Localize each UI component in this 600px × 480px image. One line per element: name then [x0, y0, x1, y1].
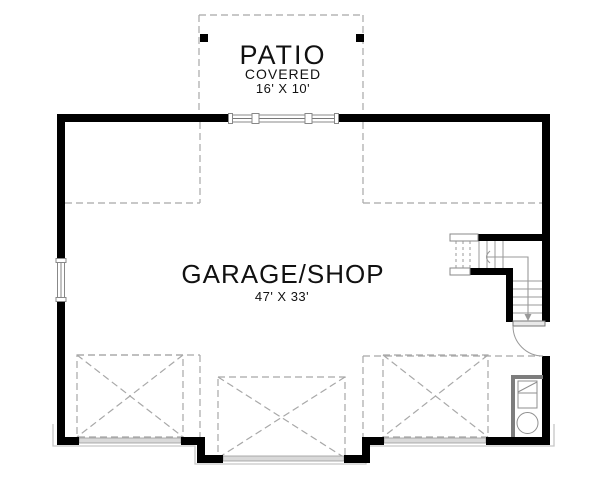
- patio-dimensions: 16' X 10': [256, 81, 310, 96]
- ceiling-line-left: [65, 122, 200, 203]
- door-swing-arc: [513, 326, 543, 356]
- stairs: [450, 234, 542, 322]
- garage-dimensions: 47' X 33': [255, 289, 309, 304]
- left-window: [56, 259, 66, 302]
- water-heater: [517, 413, 538, 434]
- floor-plan-drawing: PATIO COVERED 16' X 10' GARAGE/SHOP 47' …: [0, 0, 600, 480]
- entry-door: [513, 321, 545, 356]
- patio-label: PATIO COVERED 16' X 10': [239, 40, 326, 96]
- patio-post-right: [356, 34, 364, 42]
- top-window: [229, 114, 339, 124]
- garage-door-threshold-right: [384, 438, 486, 443]
- stair-treads-upper: [479, 241, 503, 268]
- garage-bay-middle: [218, 377, 345, 458]
- garage-title: GARAGE/SHOP: [181, 259, 384, 289]
- stair-stringer-top: [450, 234, 478, 241]
- stair-stringer-bottom: [450, 268, 470, 275]
- window-mullion: [252, 114, 259, 124]
- garage-label: GARAGE/SHOP 47' X 33': [181, 259, 384, 304]
- utility-closet: [511, 375, 543, 437]
- patio-post-left: [200, 34, 208, 42]
- patio-subtitle: COVERED: [245, 66, 321, 82]
- door-leaf: [513, 321, 545, 326]
- ceiling-line-right: [363, 122, 542, 203]
- floor-plan: PATIO COVERED 16' X 10' GARAGE/SHOP 47' …: [0, 0, 600, 480]
- utility-fixture: [518, 381, 537, 408]
- window-mullion: [305, 114, 312, 124]
- garage-door-threshold-middle: [223, 456, 344, 461]
- garage-bay-left: [77, 355, 183, 437]
- stair-treads-upper-dashed: [456, 241, 470, 268]
- garage-door-threshold-left: [79, 438, 181, 443]
- stair-top-wall: [478, 234, 542, 241]
- garage-bay-right: [383, 355, 488, 437]
- stair-l-wall-vertical: [506, 268, 513, 322]
